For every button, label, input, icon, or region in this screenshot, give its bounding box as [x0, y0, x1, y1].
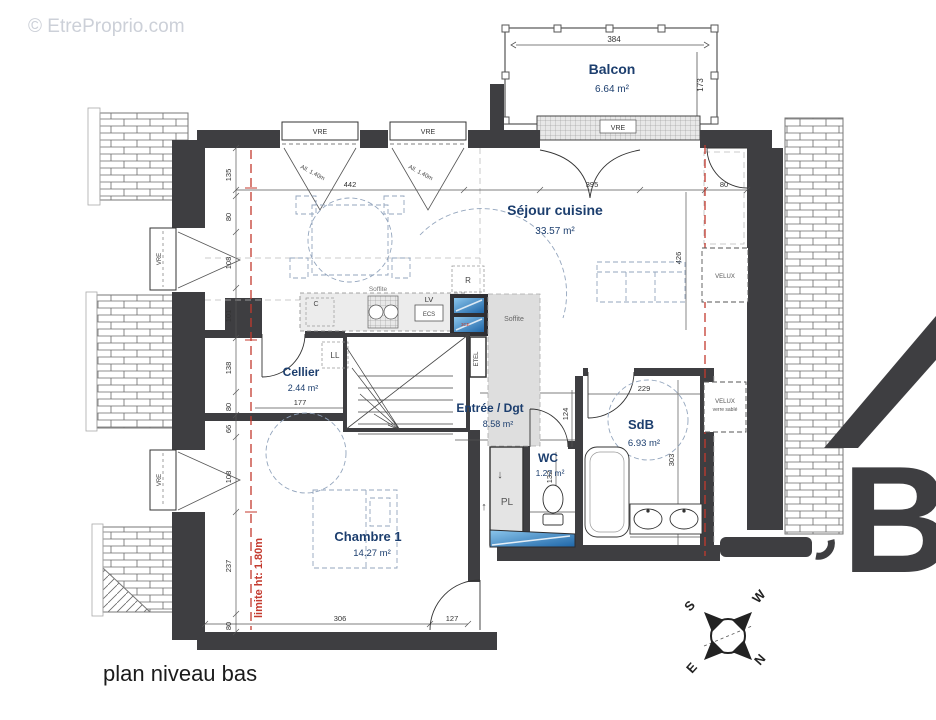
duct-label: ETEL — [474, 351, 480, 367]
dishwasher-label: LV — [425, 295, 434, 304]
room-label-entree: Entrée / Dgt — [456, 401, 523, 415]
window-label: VRE — [421, 129, 436, 136]
roof-hatch-right — [785, 118, 843, 534]
dim: 138 — [224, 362, 233, 375]
dim: 108 — [224, 257, 233, 270]
velux-lower: VELUX verre sablé — [704, 382, 746, 432]
dim: 442 — [344, 180, 357, 189]
closet-label: PL — [501, 497, 514, 508]
staircase: LL — [322, 335, 468, 434]
dim: 108 — [224, 471, 233, 484]
height-limit-label: limite ht: 1.80m — [253, 538, 265, 618]
arrow-up-icon: ↑ — [481, 501, 487, 513]
dim: 101 — [224, 310, 233, 323]
compass-north: N — [751, 651, 768, 668]
dim: 66 — [224, 425, 233, 433]
plan-title: plan niveau bas — [103, 661, 257, 686]
fridge-label: R — [465, 276, 471, 285]
dim: 124 — [561, 408, 570, 421]
room-area-entree: 8.58 m² — [483, 419, 514, 429]
fridge-and-skylight: R 3CE — [450, 266, 488, 336]
arrow-down-icon: ↓ — [497, 469, 503, 481]
room-area-chambre: 14.27 m² — [353, 548, 391, 559]
dim: 80 — [224, 213, 233, 221]
room-area-cellier: 2.44 m² — [288, 383, 319, 393]
room-label-sdb: SdB — [628, 417, 654, 432]
balcony: 384 173 Balcon 6.64 m² — [502, 25, 718, 124]
room-area-sejour: 33.57 m² — [535, 226, 575, 237]
soffit-label: Soffite — [369, 286, 388, 293]
allege-label: All. 1.40m — [407, 164, 433, 182]
dim-balcon-width: 384 — [607, 35, 621, 44]
velux-glass-label: verre sablé — [713, 407, 738, 413]
dim: 303 — [667, 454, 676, 467]
room-label-chambre: Chambre 1 — [334, 529, 401, 544]
window-north-1: VRE All. 1.40m — [282, 122, 358, 210]
dim: 80 — [224, 622, 233, 630]
velux-upper: VELUX — [702, 248, 748, 302]
low-glazing — [490, 530, 575, 547]
water-heater-label: ECS — [423, 312, 435, 318]
allege-label: All. 1.40m — [299, 164, 325, 182]
window-label: VRE — [313, 129, 328, 136]
cooker-label: C — [313, 301, 318, 308]
velux-label: VELUX — [715, 399, 735, 405]
room-label-balcon: Balcon — [589, 61, 636, 77]
compass-west: W — [749, 586, 769, 606]
dim-balcon-height: 173 — [696, 78, 705, 92]
window-label: VRE — [157, 253, 163, 265]
kitchen-counter: C LV ECS Soffite — [300, 286, 465, 331]
compass-south: S — [681, 597, 698, 614]
window-label: VRE — [157, 474, 163, 486]
skylight-code: 3CE — [461, 322, 470, 327]
dim: 135 — [224, 169, 233, 182]
room-label-sejour: Séjour cuisine — [507, 202, 603, 218]
bay-window-strip: VRE — [537, 116, 700, 140]
compass-rose: S W E N — [681, 586, 769, 676]
room-label-wc: WC — [538, 451, 558, 465]
washer-label: LL — [331, 351, 340, 360]
room-label-cellier: Cellier — [283, 365, 320, 379]
window-north-2: VRE All. 1.40m — [390, 122, 466, 210]
technical-duct: ETEL — [470, 337, 486, 377]
dim: 237 — [224, 560, 233, 573]
dim: 306 — [334, 614, 347, 623]
room-area-wc: 1.27 m² — [536, 468, 565, 478]
dim: 177 — [294, 398, 307, 407]
floor-plan-drawing: © EtreProprio.com 384 173 Balcon 6.64 m² — [0, 0, 936, 720]
dim: 229 — [638, 384, 651, 393]
room-area-balcon: 6.64 m² — [595, 84, 630, 95]
dim: 127 — [446, 614, 459, 623]
dim: 80 — [224, 403, 233, 411]
window-label: VRE — [611, 125, 626, 132]
compass-east: E — [683, 659, 700, 676]
velux-label: VELUX — [715, 274, 735, 280]
watermark-logo-letter: B — [842, 435, 936, 605]
floor-plan-page: © EtreProprio.com 384 173 Balcon 6.64 m² — [0, 0, 936, 720]
watermark-text: © EtreProprio.com — [28, 16, 185, 37]
room-area-sdb: 6.93 m² — [628, 438, 660, 449]
soffit-label: Soffite — [504, 316, 524, 323]
